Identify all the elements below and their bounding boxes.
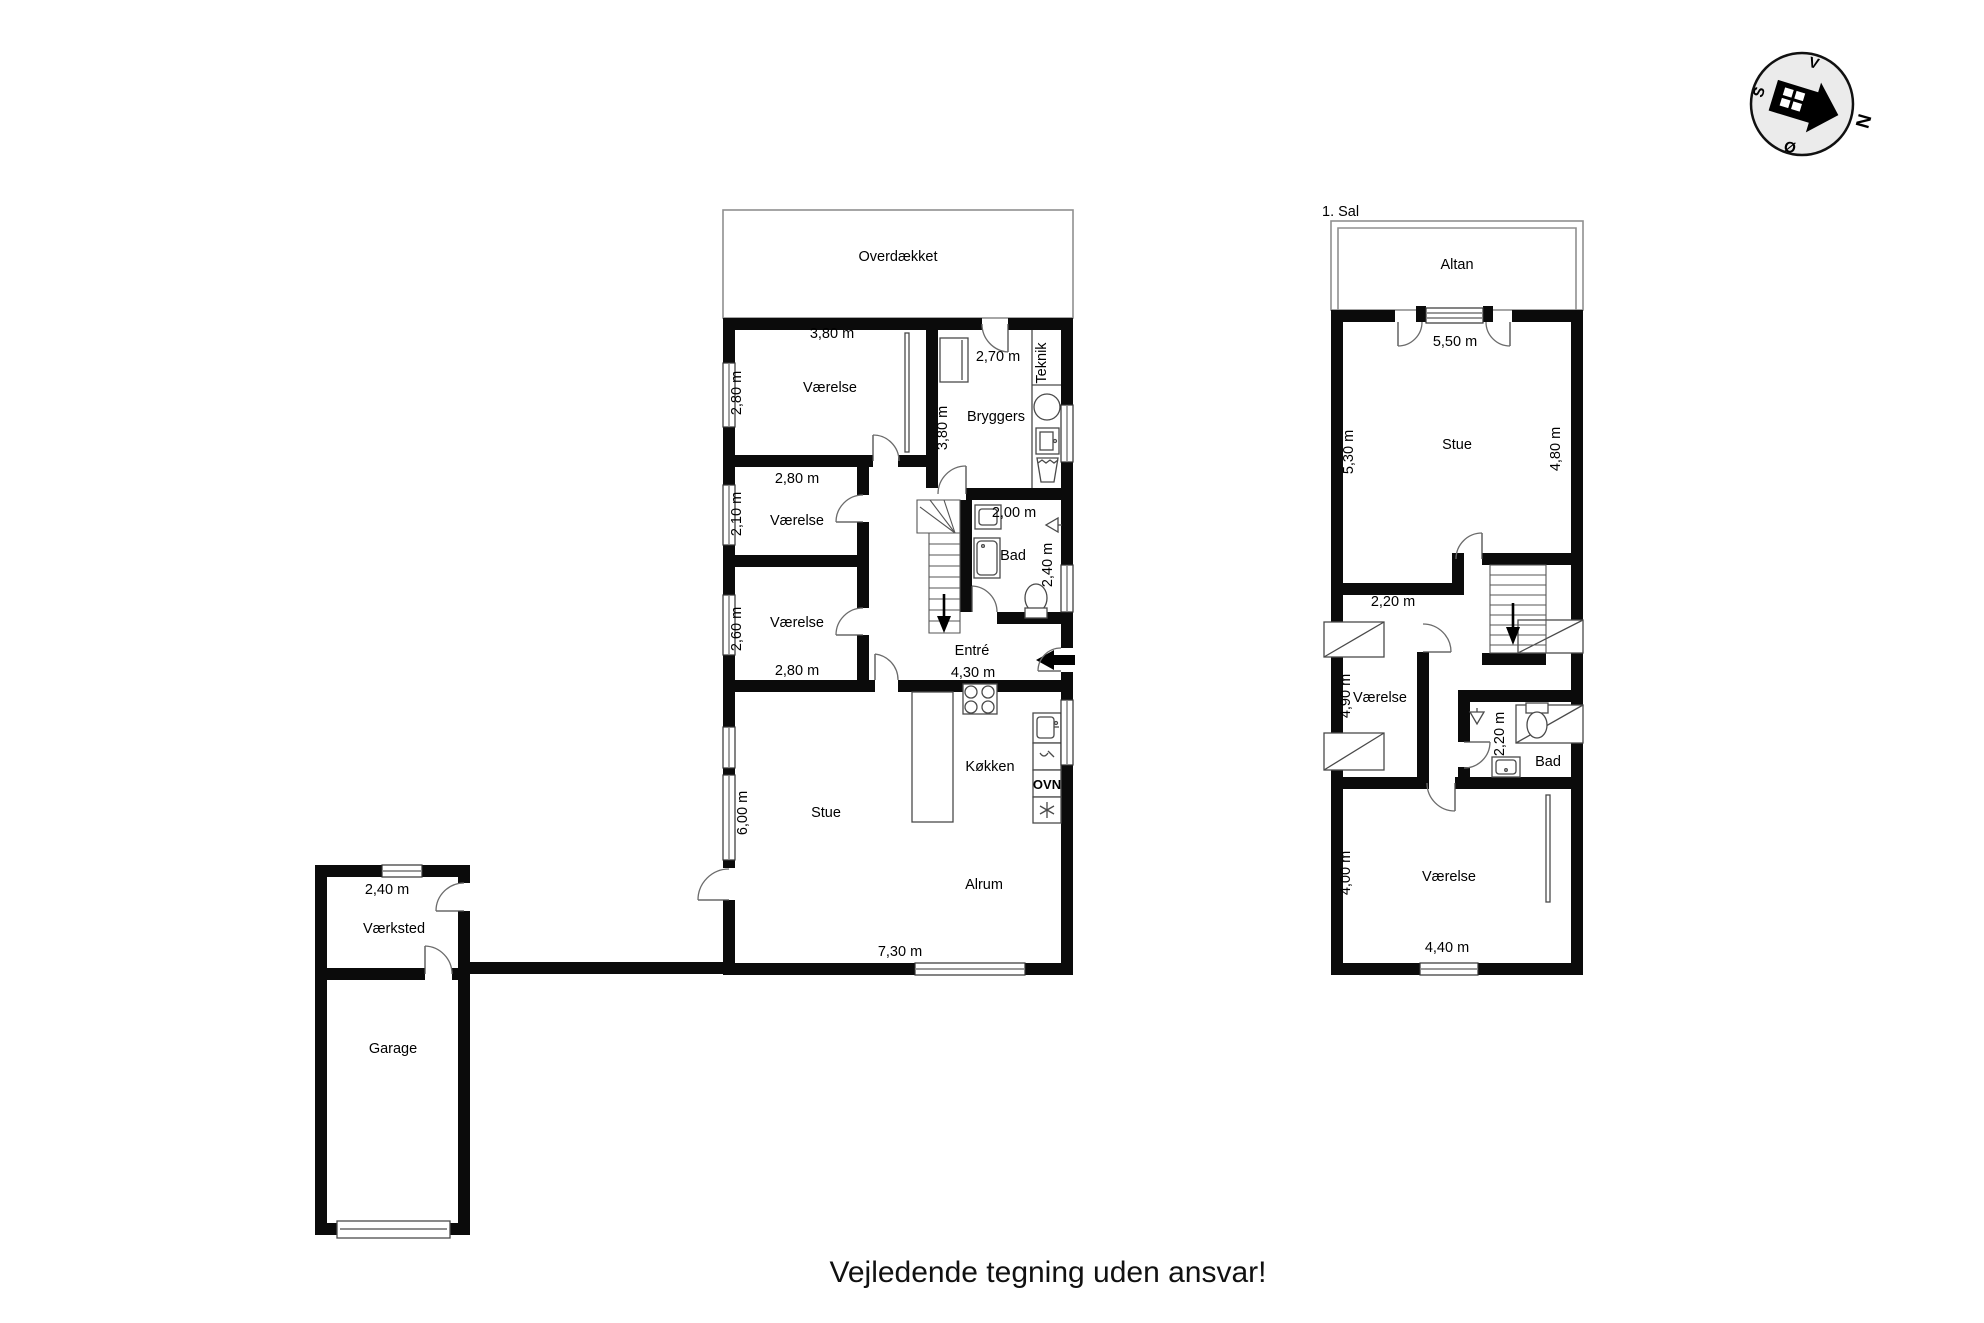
dim-stue1-right: 4,80 m <box>1548 427 1564 471</box>
dim-vaerksted-width: 2,40 m <box>365 882 409 898</box>
dim-vaerelse3-width: 2,80 m <box>775 663 819 679</box>
dim-stue1-left: 5,30 m <box>1341 430 1357 474</box>
toilet-icon <box>1025 584 1047 618</box>
floor-plan-canvas: Overdækket 3,80 m Værelse 2,80 m 2,70 m … <box>0 0 1984 1323</box>
dim-vaerelse1-width: 3,80 m <box>810 326 854 342</box>
dim-bryggers-depth: 3,80 m <box>935 406 951 450</box>
room-label-kokken: Køkken <box>965 759 1014 775</box>
shower-icon <box>1046 518 1062 532</box>
room-label-vaerelse3: Værelse <box>770 615 824 631</box>
toilet-icon <box>1526 703 1548 738</box>
area-label-altan: Altan <box>1440 257 1473 273</box>
dim-alrum-width: 7,30 m <box>878 944 922 960</box>
closet-icon <box>1546 795 1550 902</box>
room-label-entre: Entré <box>955 643 990 659</box>
first-floor-fixtures <box>1324 565 1583 902</box>
dim-vaerelse3-depth: 2,60 m <box>729 607 745 651</box>
kitchen-sink-icon <box>1033 713 1061 743</box>
bathtub-icon <box>974 538 1000 578</box>
dim-stue1-width: 5,50 m <box>1433 334 1477 350</box>
dim-bryggers-width: 2,70 m <box>976 349 1020 365</box>
ground-floor-plan: Overdækket 3,80 m Værelse 2,80 m 2,70 m … <box>698 210 1075 975</box>
room-label-bad: Bad <box>1000 548 1026 564</box>
laundry-sink-icon <box>1037 458 1058 482</box>
compass-icon: N S Ø V <box>1750 53 1875 156</box>
dim-bad-width: 2,00 m <box>992 505 1036 521</box>
cabinet-icon <box>940 338 968 382</box>
dim-vaerelse-syd-width: 4,40 m <box>1425 940 1469 956</box>
oven-label: OVN <box>1033 777 1061 792</box>
dim-bad-depth: 2,40 m <box>1040 543 1056 587</box>
dim-vaerelse-mid-width: 2,20 m <box>1371 594 1415 610</box>
room-label-vaerksted: Værksted <box>363 921 425 937</box>
room-label-bad1: Bad <box>1535 754 1561 770</box>
outbuilding-plan: 2,40 m Værksted Garage <box>315 865 723 1238</box>
roof-window-icon <box>1324 622 1384 657</box>
room-label-vaerelse-mid: Værelse <box>1353 690 1407 706</box>
garage-door-icon <box>337 1221 450 1238</box>
kitchen-counter-icon <box>912 692 953 822</box>
dishwasher-icon <box>1033 743 1061 770</box>
dim-entre-width: 4,30 m <box>951 665 995 681</box>
room-label-stue: Stue <box>811 805 841 821</box>
dim-vaerelse-mid-depth: 4,90 m <box>1338 674 1354 718</box>
dim-vaerelse1-depth: 2,80 m <box>729 371 745 415</box>
room-label-stue1: Stue <box>1442 437 1472 453</box>
washing-machine-icon <box>1034 394 1060 420</box>
dryer-icon <box>1036 428 1059 454</box>
dim-stue-depth: 6,00 m <box>735 791 751 835</box>
ground-floor-labels: Overdækket 3,80 m Værelse 2,80 m 2,70 m … <box>729 249 1061 960</box>
room-label-bryggers: Bryggers <box>967 409 1025 425</box>
entrance-arrow-icon <box>1036 650 1075 670</box>
dim-vaerelse2-width: 2,80 m <box>775 471 819 487</box>
dim-bad1-depth: 2,20 m <box>1492 712 1508 756</box>
dim-vaerelse2-depth: 2,10 m <box>729 492 745 536</box>
room-label-vaerelse1: Værelse <box>803 380 857 396</box>
floor-title-1sal: 1. Sal <box>1322 204 1359 220</box>
compass-north-label: N <box>1851 111 1875 130</box>
dim-vaerelse-syd-depth: 4,00 m <box>1338 851 1354 895</box>
stove-icon <box>963 684 997 714</box>
sliding-door-icon <box>905 333 909 452</box>
roof-window-icon <box>1324 733 1384 770</box>
room-label-garage: Garage <box>369 1041 417 1057</box>
stairs-down-icon <box>917 500 960 633</box>
room-label-vaerelse-syd: Værelse <box>1422 869 1476 885</box>
area-label-overdaekket: Overdækket <box>859 249 938 265</box>
room-label-vaerelse2: Værelse <box>770 513 824 529</box>
disclaimer-text: Vejledende tegning uden ansvar! <box>829 1256 1266 1289</box>
floor-plan-page: Overdækket 3,80 m Værelse 2,80 m 2,70 m … <box>0 0 1984 1323</box>
freezer-icon <box>1033 797 1061 823</box>
room-label-alrum: Alrum <box>965 877 1003 893</box>
shower-icon <box>1470 708 1484 724</box>
first-floor-plan: 1. Sal Altan 5,50 m Stue 5,30 m 4,80 m 2… <box>1322 204 1583 975</box>
washbasin-icon <box>1492 757 1520 777</box>
room-label-teknik: Teknik <box>1034 342 1050 384</box>
